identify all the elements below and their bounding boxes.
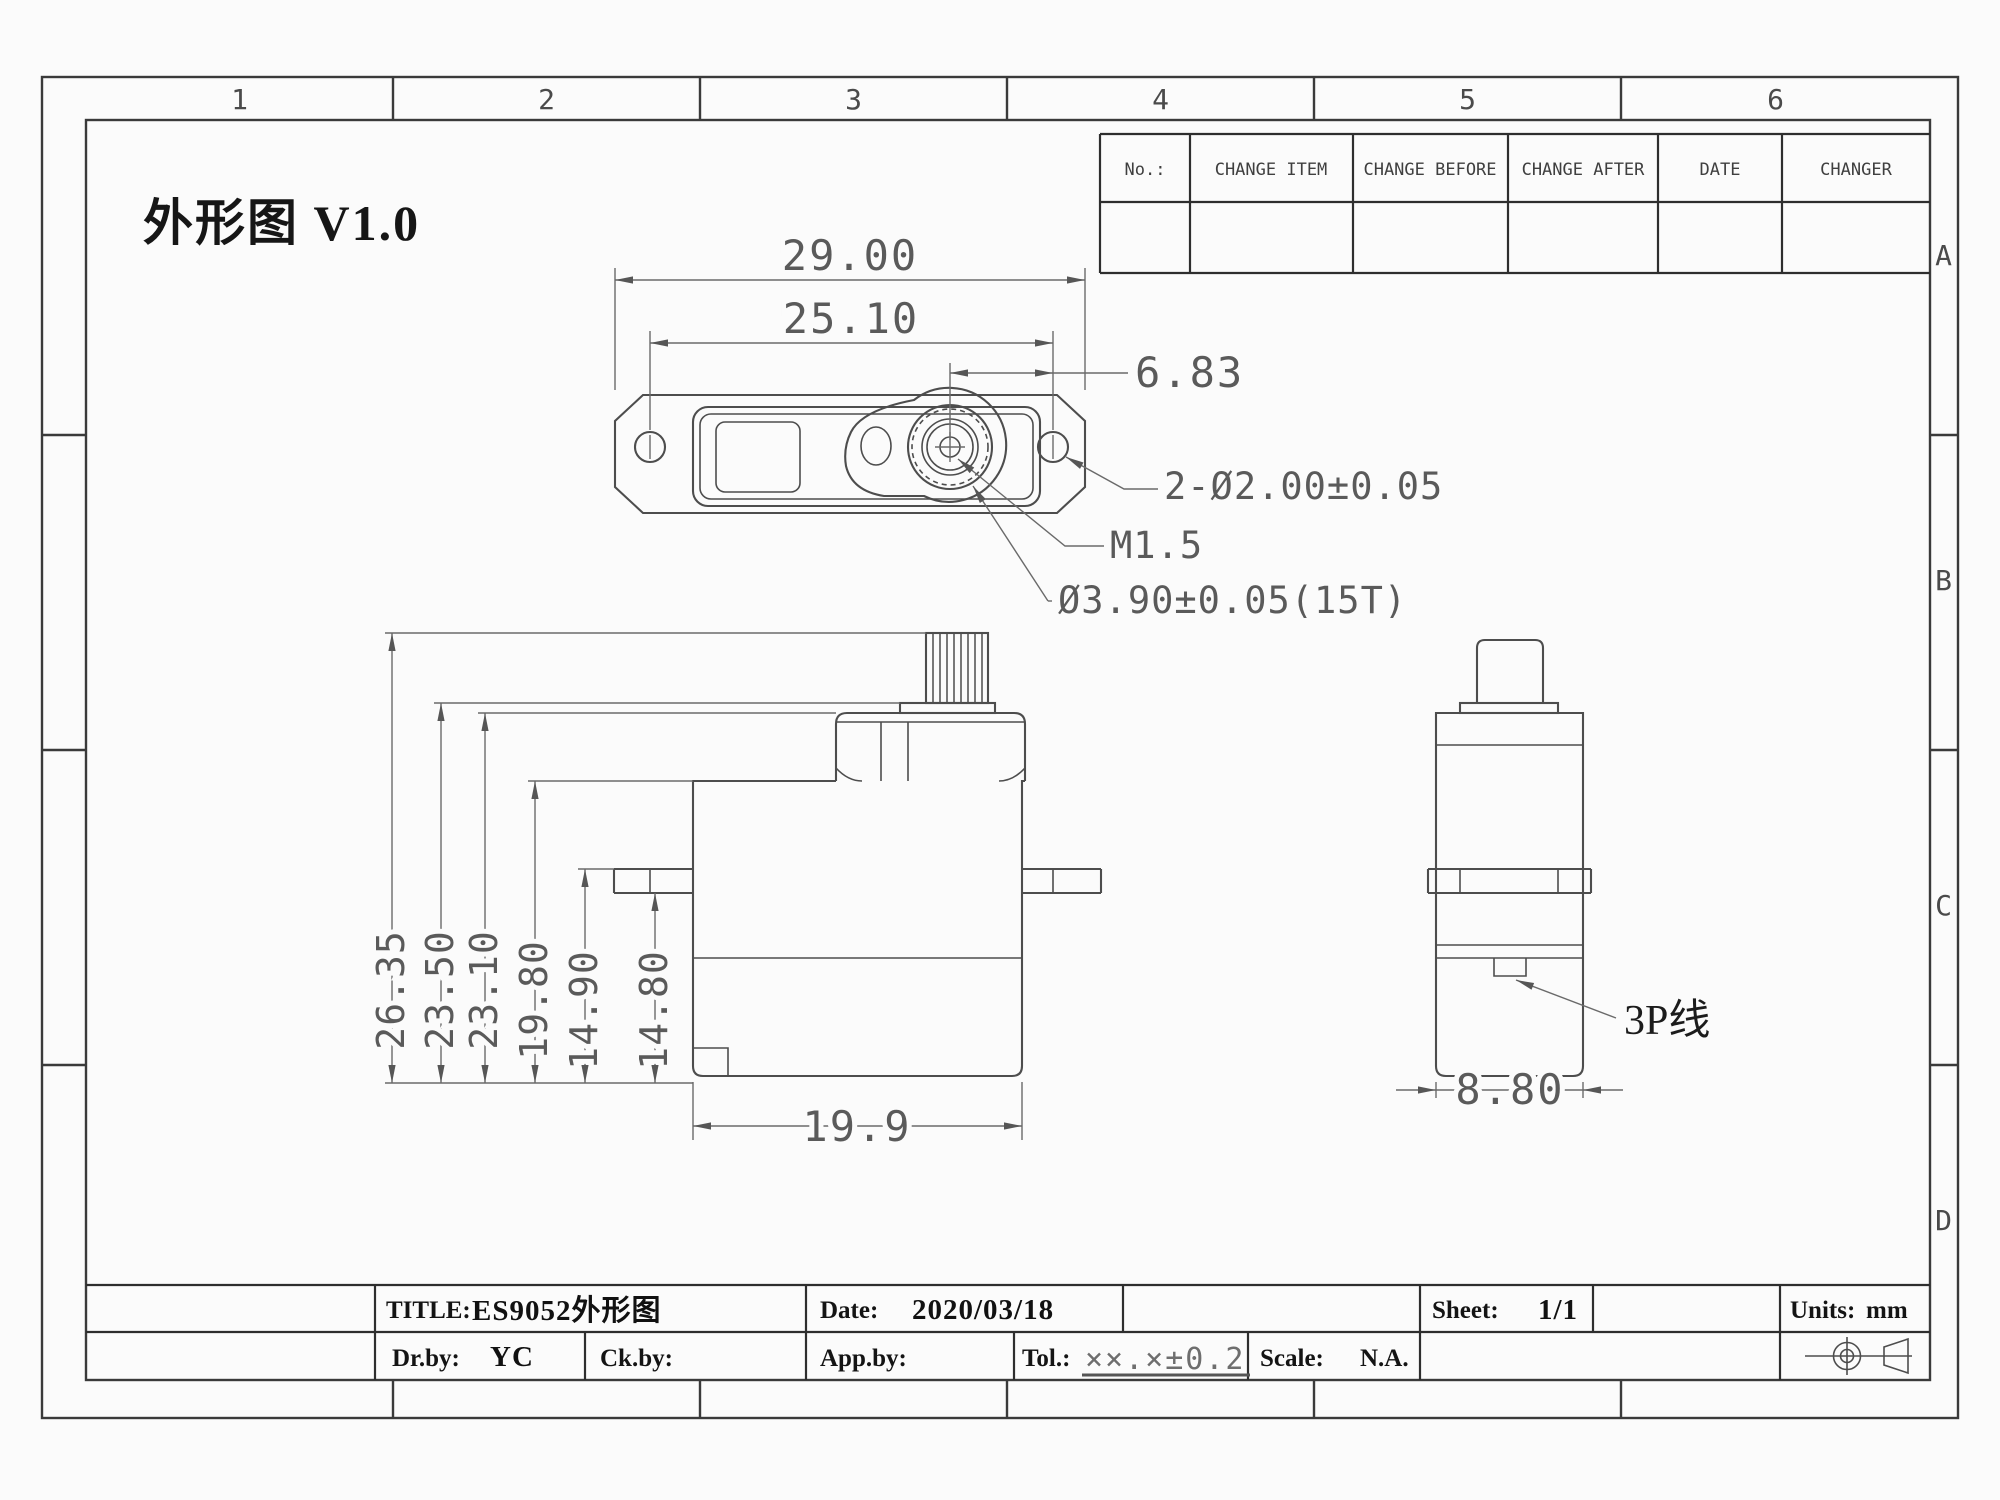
- dim-body-length: 19.9: [693, 1082, 1022, 1151]
- top-view-oval-hole: [861, 427, 891, 465]
- drawing-canvas: 1 2 3 4 5 6 A B C D 外形图 V1.0: [0, 0, 2000, 1500]
- top-view-gear-cover: [845, 388, 1006, 502]
- change-col-no: No.:: [1125, 160, 1166, 180]
- zone-row-c: C: [1935, 889, 1953, 922]
- ckby-label: Ck.by:: [600, 1345, 673, 1372]
- front-view-flange: [614, 869, 1101, 893]
- zone-col-1: 1: [231, 83, 249, 116]
- leader-connector-wire: 3P线: [1516, 980, 1710, 1044]
- appby-label: App.by:: [820, 1345, 907, 1372]
- dim-25-10: 25.10: [783, 294, 919, 343]
- dim-29-00: 29.00: [782, 231, 918, 280]
- tol-value: ××.×±0.2: [1085, 1342, 1246, 1377]
- projection-symbol-icon: [1805, 1337, 1912, 1375]
- side-view-collar: [1460, 703, 1558, 713]
- zone-col-4: 4: [1152, 83, 1170, 116]
- front-view-spline-shaft: [900, 633, 995, 713]
- change-col-after: CHANGE AFTER: [1522, 160, 1646, 180]
- zone-ticks-bottom: [393, 1380, 1621, 1418]
- dim-8-80: 8.80: [1455, 1065, 1564, 1114]
- side-view-seams: [1436, 745, 1583, 958]
- sheet-label: Sheet:: [1432, 1297, 1499, 1324]
- dim-23-10: 23.10: [462, 930, 506, 1049]
- label-3p-wire: 3P线: [1624, 998, 1710, 1044]
- dim-6-83: 6.83: [1135, 348, 1244, 397]
- dim-23-50: 23.50: [418, 930, 462, 1049]
- zone-col-5: 5: [1459, 83, 1477, 116]
- title-block: TITLE: ES9052外形图 Date: 2020/03/18 Sheet:…: [86, 1285, 1930, 1380]
- dim-14-80: 14.80: [632, 950, 676, 1069]
- top-view: 29.00 25.10 6.83 2-Ø2.00±0.05 M1.5: [615, 231, 1443, 622]
- front-view-upper-case: [836, 713, 1025, 781]
- dim-19-9: 19.9: [802, 1102, 911, 1151]
- leader-mount-holes: 2-Ø2.00±0.05: [1066, 457, 1443, 508]
- units-value: mm: [1866, 1297, 1908, 1324]
- zone-row-b: B: [1935, 564, 1953, 597]
- side-view-shaft: [1477, 640, 1543, 703]
- front-view-body: [693, 781, 1025, 1076]
- zone-col-2: 2: [538, 83, 556, 116]
- engineering-drawing-sheet: 1 2 3 4 5 6 A B C D 外形图 V1.0: [0, 0, 2000, 1500]
- side-view: 3P线 8.80: [1396, 640, 1710, 1114]
- zone-row-labels: A B C D: [1935, 239, 1953, 1237]
- scale-value: N.A.: [1360, 1345, 1409, 1372]
- drby-label: Dr.by:: [392, 1345, 460, 1372]
- dim-hole-spacing: 25.10: [650, 294, 1053, 430]
- zone-col-3: 3: [845, 83, 863, 116]
- zone-row-d: D: [1935, 1204, 1953, 1237]
- zone-ticks-top: [393, 77, 1621, 120]
- change-col-changer: CHANGER: [1820, 160, 1892, 180]
- page-title: 外形图 V1.0: [143, 195, 420, 251]
- sheet-border: 1 2 3 4 5 6 A B C D: [42, 77, 1958, 1418]
- drby-value: YC: [490, 1341, 534, 1373]
- change-col-before: CHANGE BEFORE: [1363, 160, 1496, 180]
- title-label: TITLE:: [386, 1297, 471, 1324]
- label-spline-dia: Ø3.90±0.05(15T): [1058, 579, 1407, 622]
- top-view-label-recess: [716, 422, 800, 492]
- label-mount-holes: 2-Ø2.00±0.05: [1164, 465, 1443, 508]
- zone-row-a: A: [1935, 239, 1953, 272]
- front-view: 26.35 23.50 23.10 19.80 14.90 14.80 19.9: [369, 633, 1101, 1151]
- change-table: No.: CHANGE ITEM CHANGE BEFORE CHANGE AF…: [1100, 134, 1930, 273]
- change-col-item: CHANGE ITEM: [1215, 160, 1328, 180]
- date-label: Date:: [820, 1297, 878, 1324]
- dim-26-35: 26.35: [369, 930, 413, 1049]
- label-screw-thread: M1.5: [1110, 524, 1203, 567]
- zone-ticks-right: [1930, 435, 1958, 1065]
- side-view-flange: [1428, 869, 1591, 893]
- dim-14-90: 14.90: [562, 950, 606, 1069]
- side-view-body: [1436, 713, 1583, 1076]
- dim-19-80: 19.80: [512, 940, 556, 1059]
- units-label: Units:: [1790, 1297, 1855, 1324]
- top-view-flange-outline: [615, 395, 1085, 513]
- front-view-shaft-collar: [900, 703, 995, 713]
- change-col-date: DATE: [1700, 160, 1741, 180]
- sheet-value: 1/1: [1538, 1294, 1578, 1326]
- dim-body-width: 8.80: [1396, 1065, 1623, 1114]
- scale-label: Scale:: [1260, 1345, 1324, 1372]
- front-view-height-dims: 26.35 23.50 23.10 19.80 14.90 14.80: [369, 633, 926, 1083]
- date-value: 2020/03/18: [912, 1294, 1054, 1326]
- zone-ticks-left: [42, 435, 86, 1065]
- zone-col-6: 6: [1767, 83, 1785, 116]
- title-value: ES9052外形图: [472, 1294, 661, 1327]
- tol-label: Tol.:: [1022, 1345, 1070, 1372]
- side-view-connector-tab: [1494, 958, 1526, 976]
